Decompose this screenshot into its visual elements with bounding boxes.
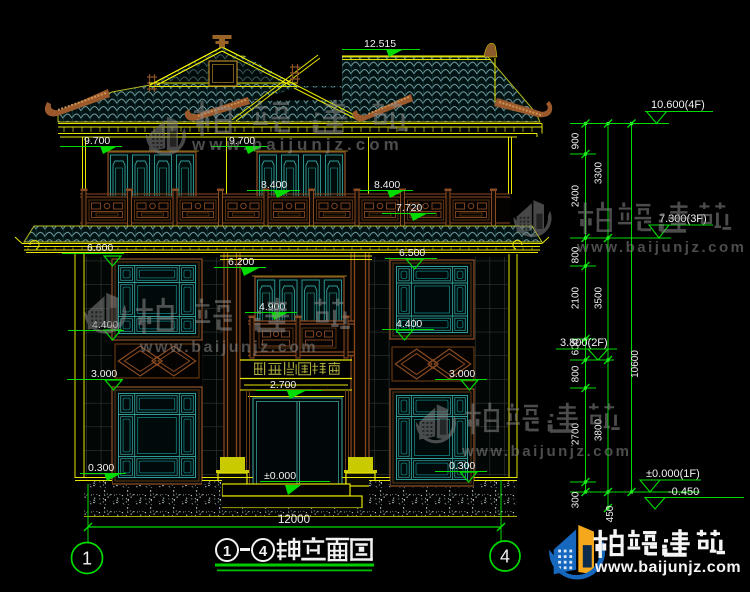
svg-text:9.700: 9.700 — [84, 135, 110, 147]
svg-text:8.400: 8.400 — [261, 179, 287, 191]
svg-text:3.000: 3.000 — [449, 368, 475, 380]
svg-text:1: 1 — [223, 543, 231, 560]
svg-text:±0.000: ±0.000 — [264, 470, 296, 482]
svg-text:900: 900 — [571, 132, 582, 149]
svg-text:2400: 2400 — [571, 184, 582, 207]
svg-text:3.800(2F): 3.800(2F) — [560, 337, 608, 349]
svg-text:7.720: 7.720 — [396, 202, 422, 214]
svg-text:www.baijunjz.com: www.baijunjz.com — [139, 339, 318, 356]
svg-text:www.baijunjz.com: www.baijunjz.com — [461, 443, 631, 460]
svg-text:12.515: 12.515 — [364, 38, 396, 50]
svg-text:3300: 3300 — [594, 161, 605, 184]
svg-text:0.300: 0.300 — [88, 462, 114, 474]
svg-text:2.700: 2.700 — [270, 379, 296, 391]
svg-text:800: 800 — [571, 365, 582, 382]
svg-text:0.300: 0.300 — [449, 460, 475, 472]
svg-text:8.400: 8.400 — [374, 179, 400, 191]
svg-text:www.baijunjz.com: www.baijunjz.com — [191, 135, 403, 154]
svg-text:10600: 10600 — [630, 350, 641, 378]
svg-text:4.400: 4.400 — [396, 318, 422, 330]
svg-text:www.baijunjz.com: www.baijunjz.com — [594, 559, 741, 576]
svg-text:2700: 2700 — [571, 422, 582, 445]
svg-text:4: 4 — [259, 543, 268, 560]
svg-text:6.200: 6.200 — [228, 256, 254, 268]
svg-text:6.600: 6.600 — [87, 242, 113, 254]
svg-text:3500: 3500 — [594, 286, 605, 309]
svg-text:3.000: 3.000 — [91, 368, 117, 380]
svg-text:12000: 12000 — [278, 514, 310, 526]
svg-text:±0.000(1F): ±0.000(1F) — [646, 468, 700, 480]
svg-text:www.baijunjz.com: www.baijunjz.com — [576, 239, 746, 256]
svg-text:4: 4 — [500, 547, 510, 567]
svg-text:1: 1 — [82, 549, 92, 569]
svg-text:6.500: 6.500 — [399, 247, 425, 259]
svg-text:-0.450: -0.450 — [668, 486, 699, 498]
svg-text:300: 300 — [571, 491, 582, 508]
svg-text:450: 450 — [605, 505, 616, 522]
svg-text:10.600(4F): 10.600(4F) — [651, 99, 705, 111]
svg-text:2100: 2100 — [571, 286, 582, 309]
